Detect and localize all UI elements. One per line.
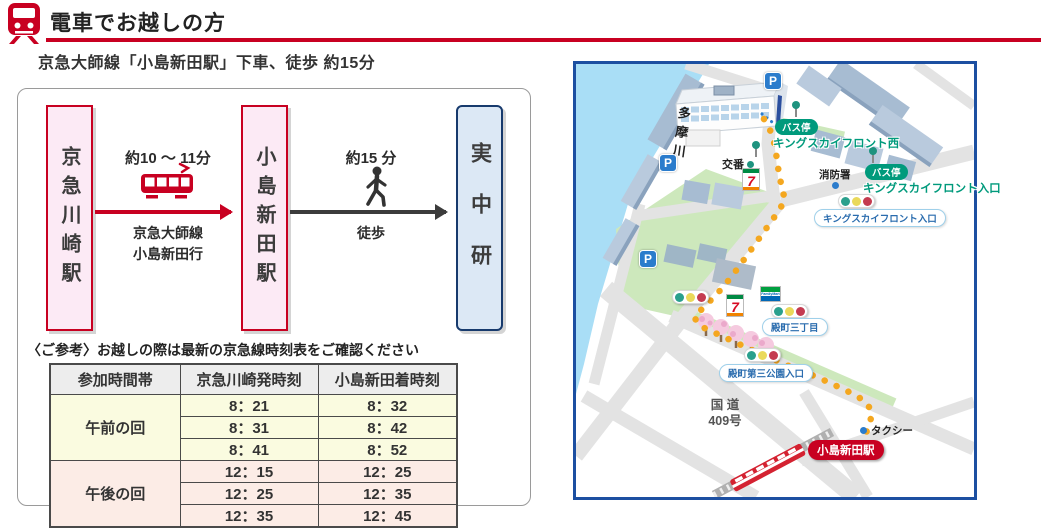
parking-icon: P [764, 72, 782, 90]
page-title: 電車でお越しの方 [50, 7, 226, 37]
national-route-line1: 国 道 [692, 397, 758, 413]
timetable: 参加時間帯 京急川崎発時刻 小島新田着時刻 午前の回 8：21 8：32 8：3… [49, 363, 458, 528]
seven-glyph: 7 [747, 173, 755, 189]
police-box-dot-icon [747, 161, 754, 168]
arr-time: 8：42 [318, 416, 457, 438]
fire-station-dot-icon [832, 182, 839, 189]
col-header-depart: 京急川崎発時刻 [180, 364, 318, 394]
col-header-slot: 参加時間帯 [50, 364, 180, 394]
traffic-light-icon [672, 290, 709, 304]
slot-am-label: 午前の回 [50, 394, 180, 460]
parking-icon: P [659, 154, 677, 172]
arr-time: 8：32 [318, 394, 457, 416]
timetable-note: 〈ご参考〉お越しの際は最新の京急線時刻表をご確認ください [27, 340, 419, 360]
bus-stop-west-label: キングスカイフロント西 [773, 135, 899, 151]
taxi-text: タクシー [871, 423, 913, 438]
walk-mode-label: 徒歩 [316, 223, 426, 243]
train-line-info: 京急大師線 小島新田行 [106, 223, 230, 265]
crossing-kings-entrance-pill: キングスカイフロント入口 [814, 209, 946, 227]
dep-time: 8：41 [180, 438, 318, 460]
police-box-text: 交番 [722, 156, 744, 172]
destination-label: 実中研 [465, 142, 495, 295]
table-row: 午前の回 8：21 8：32 [50, 394, 457, 416]
walking-person-icon [360, 166, 392, 208]
access-map: 多摩川 P P P 交番 7 7 FamilyMart 消防署 バス停 キングス… [573, 61, 977, 500]
table-row: 午後の回 12：15 12：25 [50, 460, 457, 482]
title-underline [46, 38, 1041, 42]
train-icon [4, 2, 44, 46]
taxi-label: タクシー [860, 423, 913, 438]
dep-time: 12：25 [180, 482, 318, 504]
traffic-light-icon [838, 194, 875, 208]
bus-stop-badge: バス停 [775, 119, 818, 135]
dep-time: 8：31 [180, 416, 318, 438]
train-side-icon [138, 161, 198, 205]
arr-time: 12：35 [318, 482, 457, 504]
walk-duration: 約15 分 [316, 147, 426, 168]
traffic-light-icon [771, 304, 808, 318]
crossing-tonomachi-park-pill: 殿町第三公園入口 [719, 364, 813, 382]
destination-box: 実中研 [456, 105, 503, 331]
arr-time: 12：45 [318, 504, 457, 527]
dep-time: 12：15 [180, 460, 318, 482]
dep-time: 8：21 [180, 394, 318, 416]
traffic-light-icon [744, 348, 781, 362]
seven-eleven-icon: 7 [742, 168, 760, 191]
seven-glyph: 7 [731, 299, 739, 315]
dep-time: 12：35 [180, 504, 318, 527]
origin-station-label: 京急川崎駅 [55, 146, 84, 291]
train-line-name: 京急大師線 [106, 223, 230, 244]
seven-eleven-icon: 7 [726, 294, 744, 317]
familymart-blue-stripe [761, 296, 780, 301]
fire-station-label: 消防署 [819, 167, 851, 182]
access-summary: 京急大師線「小島新田駅」下車、徒歩 約15分 [38, 49, 375, 73]
route-panel: 京急川崎駅 小島新田駅 実中研 約10 ～ 11分 京急大師線 小島新田行 約1… [17, 88, 531, 506]
train-leg-arrow [95, 210, 231, 214]
national-route-label: 国 道 409号 [692, 397, 758, 429]
bus-stop-badge: バス停 [865, 164, 908, 180]
taxi-dot-icon [860, 427, 867, 434]
parking-icon: P [639, 250, 657, 268]
familymart-icon: FamilyMart [760, 286, 781, 302]
crossing-tonomachi3-pill: 殿町三丁目 [762, 318, 828, 336]
station-box-via: 小島新田駅 [241, 105, 288, 331]
station-pill: 小島新田駅 [808, 440, 884, 460]
walk-leg-arrow [290, 210, 446, 214]
via-station-label: 小島新田駅 [250, 146, 279, 291]
col-header-arrive: 小島新田着時刻 [318, 364, 457, 394]
bus-stop-entrance-label: キングスカイフロント入口 [863, 180, 1001, 196]
national-route-line2: 409号 [692, 413, 758, 429]
arr-time: 8：52 [318, 438, 457, 460]
train-bound: 小島新田行 [106, 244, 230, 265]
arr-time: 12：25 [318, 460, 457, 482]
station-box-origin: 京急川崎駅 [46, 105, 93, 331]
